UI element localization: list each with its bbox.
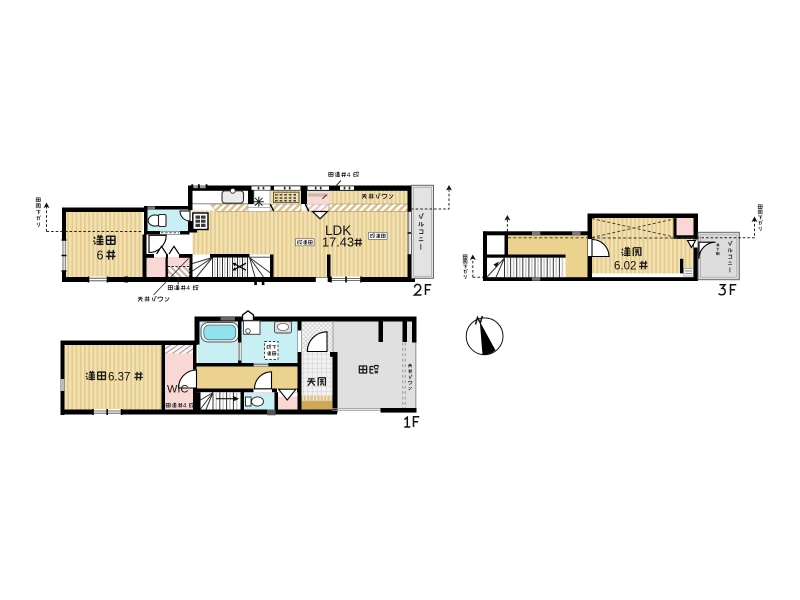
svg-text:6: 6 <box>97 248 104 262</box>
svg-text:4: 4 <box>183 403 187 410</box>
svg-text:WIC: WIC <box>167 384 188 396</box>
svg-text:6.37: 6.37 <box>108 372 130 384</box>
svg-text:17.43: 17.43 <box>322 235 354 250</box>
svg-text:4: 4 <box>347 172 351 179</box>
svg-text:4: 4 <box>186 285 190 292</box>
svg-text:6.02: 6.02 <box>614 261 636 273</box>
